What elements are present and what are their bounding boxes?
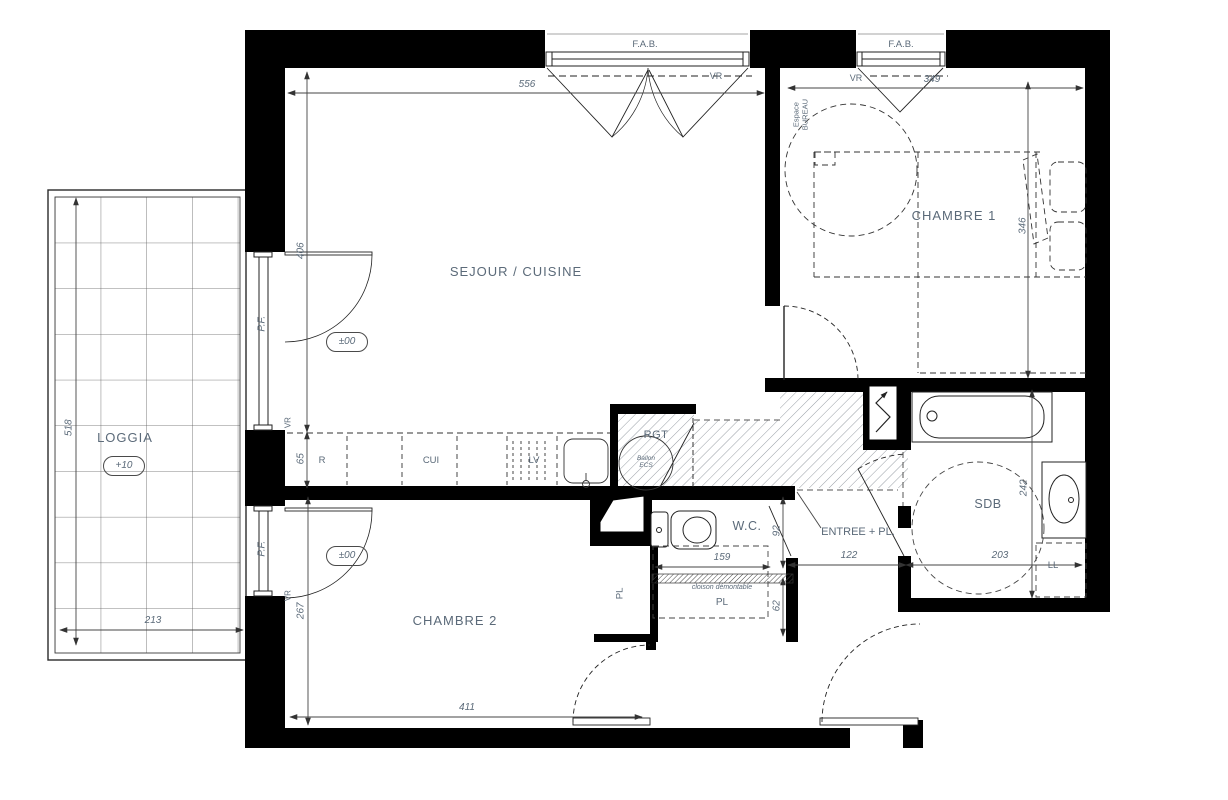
room-label-entree: ENTREE + PL.	[798, 526, 918, 539]
cooktop-label: CUI	[411, 456, 451, 467]
vr-label-3: VR	[283, 408, 292, 438]
bathtub	[912, 392, 1052, 442]
fab-label-2: F.A.B.	[871, 40, 931, 51]
dim-counter-depth: 65	[295, 439, 307, 479]
pf-label-1: P.F.	[256, 304, 268, 344]
dim-chambre1-depth: 346	[1017, 206, 1029, 246]
hand-basin	[651, 512, 668, 547]
room-label-sdb: SDB	[958, 497, 1018, 511]
vr-label-2: VR	[841, 73, 871, 83]
chair-outline	[1050, 162, 1086, 212]
dim-wc-depth: 92	[771, 511, 783, 551]
dim-loggia-depth: 518	[63, 408, 75, 448]
room-label-loggia: LOGGIA	[85, 431, 165, 446]
room-label-rgt: RGT	[631, 429, 681, 442]
dim-wc-width: 159	[702, 552, 742, 564]
washing-machine-label: LL	[1038, 561, 1068, 572]
dim-sejour-depth: 406	[295, 231, 307, 271]
room-label-sejour: SEJOUR / CUISINE	[431, 265, 601, 280]
dim-pl-depth: 62	[771, 586, 783, 626]
dim-sdb-depth: 242	[1018, 468, 1030, 508]
level-badge-sejour: ±00	[326, 332, 368, 352]
removable-partition	[652, 574, 793, 583]
floorplan-drawing	[0, 0, 1228, 800]
room-label-wc: W.C.	[717, 519, 777, 533]
toilet	[671, 511, 716, 549]
dim-chambre2-depth: 267	[295, 591, 307, 631]
chambre1-furniture	[785, 104, 1086, 373]
dim-sdb-width: 203	[980, 550, 1020, 562]
partition-note: cloison démontable	[672, 584, 772, 592]
dim-loggia-width: 213	[133, 615, 173, 627]
room-label-chambre2: CHAMBRE 2	[395, 614, 515, 629]
fab-label-1: F.A.B.	[615, 40, 675, 51]
loggia-terrace	[48, 190, 246, 660]
chair-outline	[1050, 222, 1086, 270]
dim-chambre2-width: 411	[447, 702, 487, 714]
room-label-chambre1: CHAMBRE 1	[894, 209, 1014, 224]
fridge-label: R	[307, 456, 337, 467]
floorplan: F.A.B. F.A.B. VR VR VR VR P.F. P.F. LOGG…	[0, 0, 1228, 800]
dim-entree-width: 122	[829, 550, 869, 562]
closet-label-2: PL	[702, 597, 742, 609]
vr-label-4: VR	[283, 581, 292, 611]
pf-label-2: P.F.	[256, 529, 268, 569]
closet-label-1: PL	[616, 578, 627, 608]
level-badge-chambre2: ±00	[326, 546, 368, 566]
walls	[245, 30, 1110, 748]
dim-chambre1-width: 349	[912, 74, 952, 86]
leader-line	[797, 492, 821, 528]
water-heater-label: Ballon ECS	[621, 455, 671, 470]
dishwasher-label: LV	[519, 456, 549, 467]
dim-sejour-width: 556	[507, 79, 547, 91]
level-badge-loggia: +10	[103, 456, 145, 476]
vr-label-1: VR	[701, 71, 731, 81]
room-label-espace-bureau: Espace BUREAU	[792, 85, 809, 145]
